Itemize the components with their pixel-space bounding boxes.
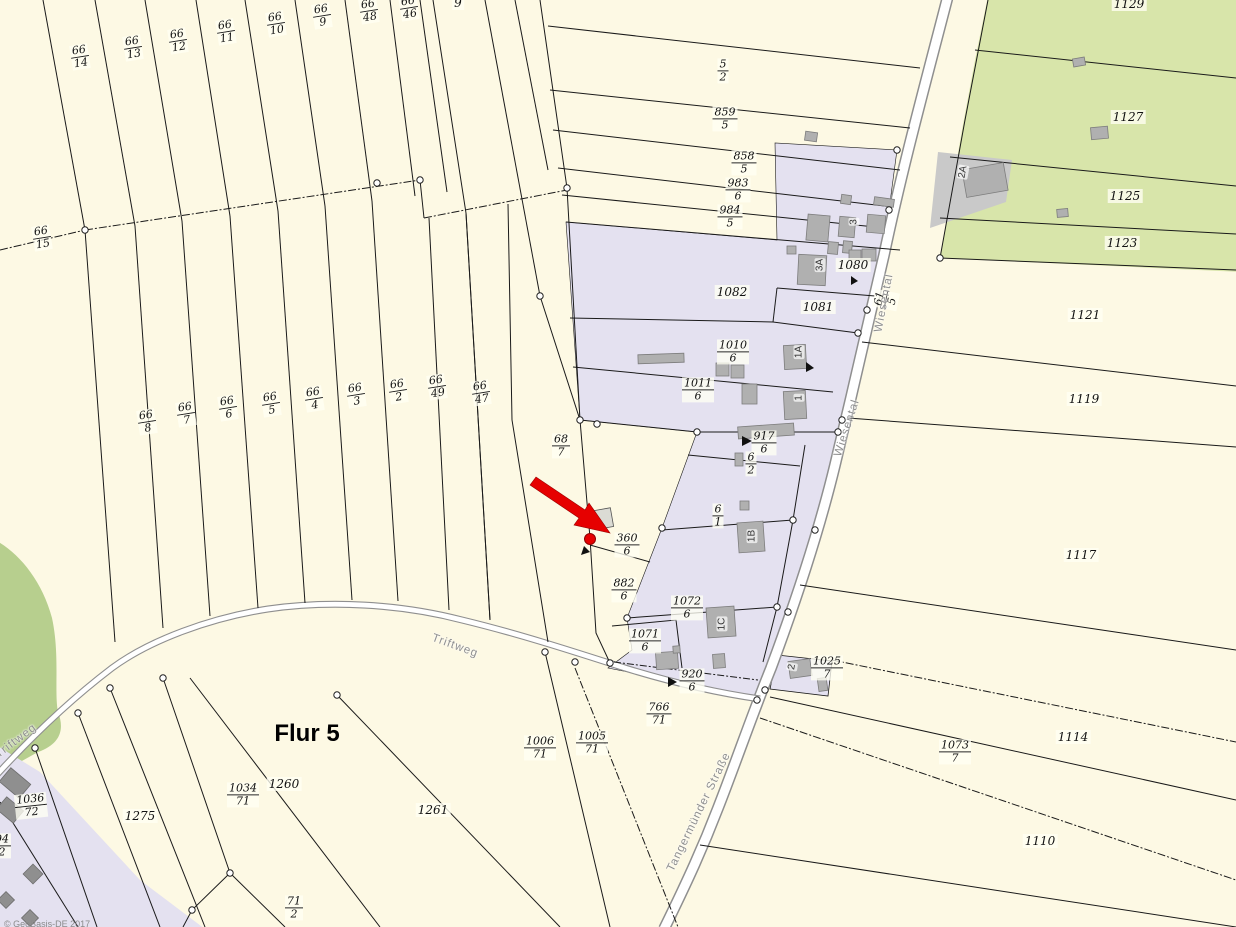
flur-title: Flur 5 [274,720,339,748]
cadastral-map[interactable]: 6614661366126611661066966486646661566866… [0,0,1236,927]
copyright-note: © GeoBasis-DE 2017 [4,919,90,927]
highlight-dot [585,534,596,545]
map-canvas [0,0,1236,927]
